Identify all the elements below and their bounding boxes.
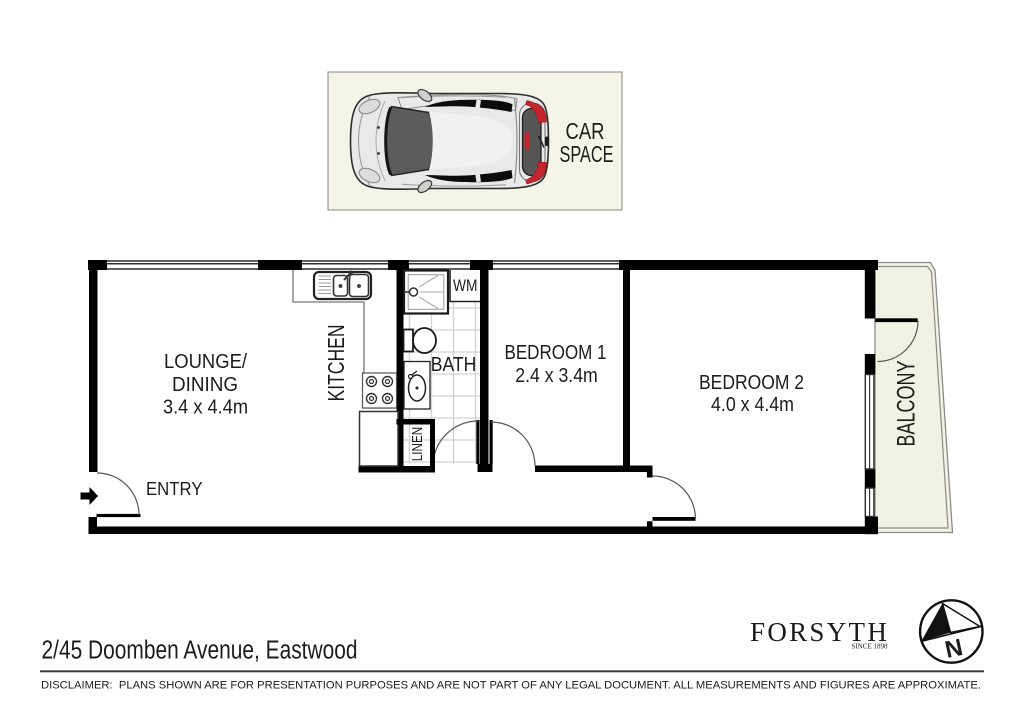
svg-text:LINEN: LINEN	[409, 427, 426, 462]
svg-text:SPACE: SPACE	[560, 141, 614, 167]
svg-text:2.4 x 3.4m: 2.4 x 3.4m	[515, 365, 598, 387]
svg-text:2/45 Doomben Avenue, Eastwood: 2/45 Doomben Avenue, Eastwood	[42, 637, 358, 665]
svg-text:SINCE 1898: SINCE 1898	[852, 642, 888, 651]
svg-text:DISCLAIMER: PLANS SHOWN ARE F: DISCLAIMER: PLANS SHOWN ARE FOR PRESENTA…	[41, 680, 981, 692]
svg-text:3.4 x 4.4m: 3.4 x 4.4m	[163, 397, 248, 419]
svg-text:WM: WM	[453, 276, 478, 295]
svg-text:4.0 x 4.4m: 4.0 x 4.4m	[711, 394, 794, 416]
svg-text:DINING: DINING	[172, 374, 238, 396]
svg-text:BALCONY: BALCONY	[893, 360, 921, 446]
svg-text:BATH: BATH	[431, 354, 477, 376]
svg-text:LOUNGE/: LOUNGE/	[164, 351, 247, 373]
svg-text:BEDROOM 1: BEDROOM 1	[505, 342, 607, 364]
svg-text:KITCHEN: KITCHEN	[323, 325, 349, 402]
svg-text:BEDROOM 2: BEDROOM 2	[699, 372, 804, 394]
svg-text:ENTRY: ENTRY	[146, 478, 203, 499]
